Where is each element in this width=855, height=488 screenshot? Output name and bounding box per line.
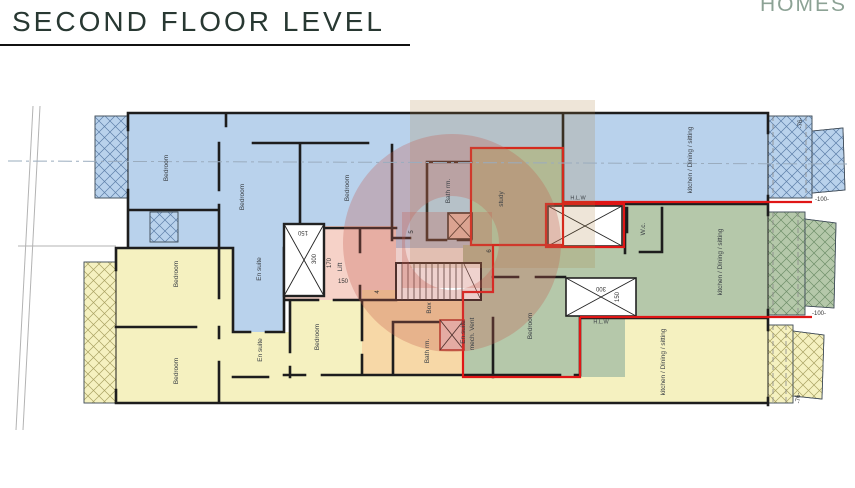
room-label-kitchen: kitchen / Dining / sitting	[718, 229, 725, 296]
room-label-hlw: H.L.W	[570, 196, 585, 202]
room-label-bedroom: Bedroom	[240, 184, 247, 210]
room-label-bedroom: Bedroom	[164, 155, 171, 181]
dim-label: -76-	[796, 393, 802, 404]
dim-label: 4	[375, 290, 381, 293]
dim-label: -100-	[812, 311, 826, 317]
dim-label: 6	[487, 249, 493, 252]
room-label-bedroom: Bedroom	[174, 261, 181, 287]
room-label-ensuite: En suite	[258, 338, 265, 362]
dim-label: 170	[327, 258, 333, 268]
room-label-study: study	[499, 191, 506, 207]
room-label-ensuite: En suite	[257, 257, 264, 281]
page: SECOND FLOOR LEVEL HOMES	[0, 0, 855, 488]
room-label-bathroom: Bath rm.	[446, 179, 453, 204]
dim-label: 300	[312, 254, 318, 264]
room-label-kitchen: kitchen / Dining / sitting	[661, 329, 668, 396]
dim-label: 300	[596, 285, 606, 291]
room-label-bedroom: Bedroom	[345, 175, 352, 201]
dim-label: 150	[338, 279, 348, 285]
dim-label: 150	[298, 229, 308, 235]
room-label-bedroom: Bedroom	[174, 358, 181, 384]
room-label-kitchen: kitchen / Dining / sitting	[688, 127, 695, 194]
dim-label: -76-	[798, 118, 804, 129]
room-label-hlw: H.L.W	[593, 320, 608, 326]
room-label-box: Box	[427, 302, 434, 313]
floor-plan	[0, 0, 855, 488]
dim-label: 5	[409, 230, 415, 233]
dim-label: -100-	[815, 197, 829, 203]
room-label-wc: W.c.	[641, 223, 648, 236]
room-label-mech-vent: mech. Vent	[470, 318, 477, 351]
room-label-lift: Lift	[338, 263, 345, 272]
room-label-ensuite: En.suite	[461, 320, 468, 344]
room-label-bathroom: Bath rm.	[425, 339, 432, 364]
dim-label: 150	[615, 292, 621, 302]
room-label-bedroom: Bedroom	[528, 313, 535, 339]
room-label-bedroom: Bedroom	[315, 324, 322, 350]
